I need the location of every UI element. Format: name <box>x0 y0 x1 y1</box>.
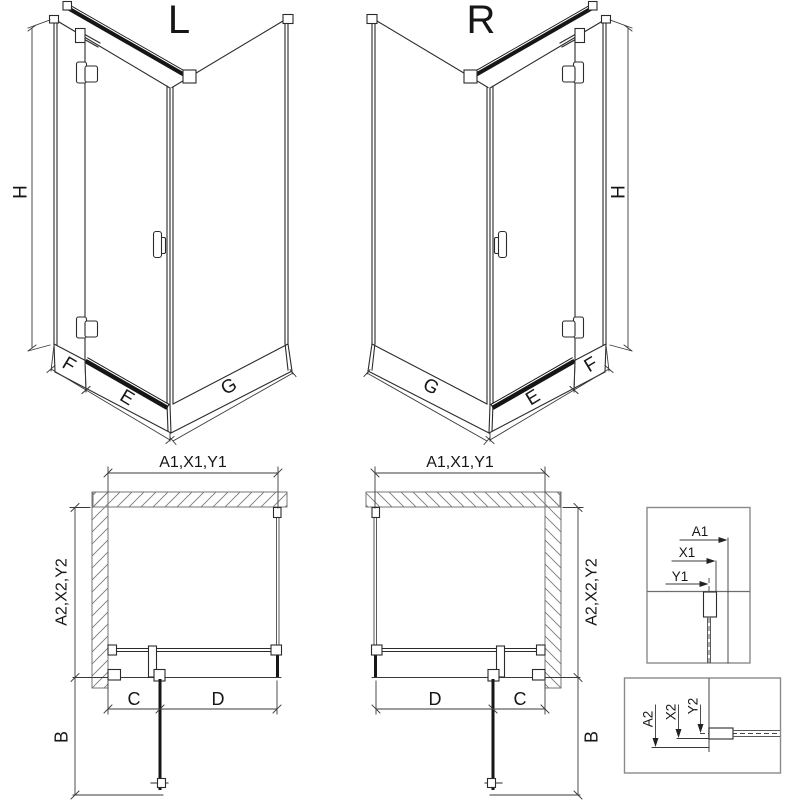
plan-view-left <box>70 467 287 799</box>
wall-profile-section <box>704 592 717 617</box>
dim-label-width-plan-right: A1,X1,Y1 <box>426 454 494 471</box>
dim-label-door-left: E <box>116 386 138 411</box>
dim-label-door-segment-right: D <box>429 689 442 709</box>
dim-label-height-left: H <box>11 185 32 199</box>
detail-dim-a1: A1 <box>692 524 709 539</box>
iso-view-right <box>364 2 632 445</box>
dim-label-side-left: G <box>218 374 241 400</box>
detail-dim-y2: Y2 <box>686 698 701 715</box>
dim-label-fixed-right: F <box>581 353 602 377</box>
dim-label-width-plan-left: A1,X1,Y1 <box>159 454 227 471</box>
detail-dim-y1: Y1 <box>672 569 689 584</box>
wall-profile-section <box>709 728 733 739</box>
technical-drawing-canvas: L R H F E G H F E G A1,X1,Y1 A2,X2,Y2 C … <box>0 0 800 800</box>
detail-dim-a2: A2 <box>641 711 656 728</box>
shower-enclosure-technical-drawing: L R H F E G H F E G A1,X1,Y1 A2,X2,Y2 C … <box>0 0 800 800</box>
dim-label-swing-left: B <box>51 731 71 743</box>
dim-label-door-right: E <box>522 386 544 411</box>
dim-label-depth-plan-left: A2,X2,Y2 <box>54 558 71 626</box>
plan-view-right <box>366 467 583 799</box>
labels-layer: L R H F E G H F E G A1,X1,Y1 A2,X2,Y2 C … <box>11 0 709 743</box>
dim-label-height-right: H <box>609 185 630 199</box>
dim-label-swing-right: B <box>581 731 601 743</box>
dim-label-side-right: G <box>419 374 442 400</box>
detail-dim-x1: X1 <box>679 545 696 560</box>
detail-dim-x2: X2 <box>664 704 679 721</box>
dim-label-fixed-segment-left: C <box>128 689 141 709</box>
dim-label-fixed-left: F <box>58 353 79 377</box>
view-title-right: R <box>467 0 496 42</box>
dim-label-fixed-segment-right: C <box>514 689 527 709</box>
dim-label-depth-plan-right: A2,X2,Y2 <box>584 558 601 626</box>
iso-view-left <box>28 2 296 445</box>
view-title-left: L <box>168 0 190 42</box>
dim-label-door-segment-left: D <box>212 689 225 709</box>
